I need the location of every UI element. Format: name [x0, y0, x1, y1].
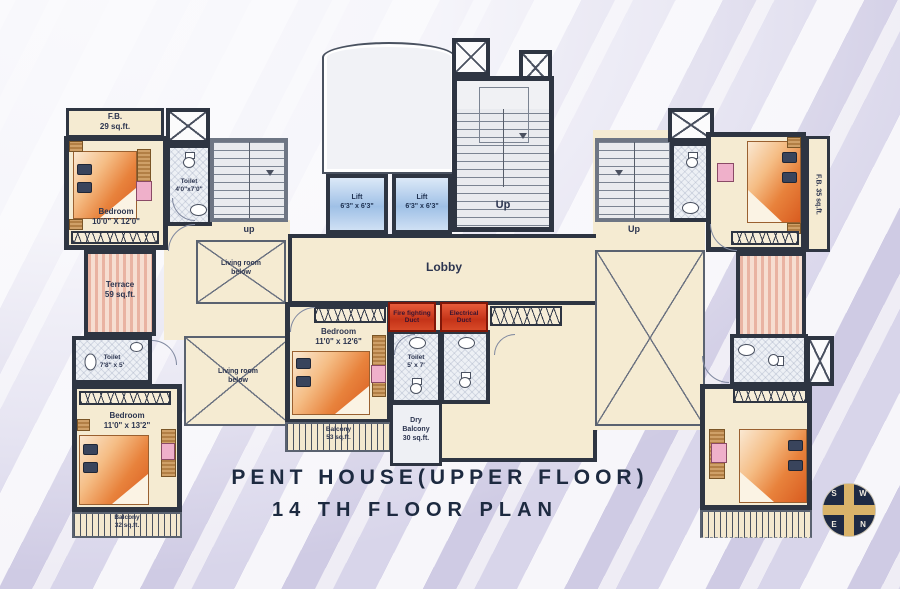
pillow — [77, 182, 92, 193]
stair-arrow-icon — [266, 170, 274, 176]
compass-east: E — [829, 520, 839, 529]
upper-terrace-curved — [322, 42, 456, 174]
toilet-top-left-size: 4'0"x7'0" — [170, 186, 208, 194]
fb-right-label: F.B. 35 sq.ft. — [809, 139, 827, 249]
pillow — [782, 172, 797, 183]
plan-title-line2: 14 TH FLOOR PLAN — [200, 499, 630, 522]
sheet-fold — [748, 190, 782, 222]
toilet-mid-left: Toilet7'8" x 5' — [72, 336, 152, 384]
compass-west: W — [858, 489, 868, 498]
toilet-icon — [183, 152, 195, 168]
floor-plan-canvas: F.B.29 sq.ft. Bedroom10'0" X 12'0" Toile… — [0, 0, 900, 589]
toilet-icon — [410, 378, 422, 394]
electrical-duct: ElectricalDuct — [440, 302, 488, 332]
electrical-duct-note: Duct — [442, 317, 486, 324]
stair-divider — [503, 109, 504, 187]
lift-1: Lift6'3" x 6'3" — [326, 174, 388, 234]
fire-duct-name: Fire fighting — [390, 310, 434, 317]
bed-furniture — [747, 141, 801, 223]
living-room-below-right — [595, 250, 705, 426]
plan-title-line1: PENT HOUSE(UPPER FLOOR) — [200, 466, 680, 490]
stair-arrow-icon — [519, 133, 527, 139]
pillow — [83, 462, 98, 473]
balcony-bottom-right — [700, 510, 812, 538]
compass-south: S — [829, 489, 839, 498]
bedroom-top-left-size: 10'0" X 12'0" — [69, 217, 163, 227]
door-arc — [702, 356, 729, 383]
toilet-icon — [459, 372, 471, 388]
shaft-duct-box — [452, 38, 490, 76]
terrace-left-area: 59 sq.ft. — [88, 290, 152, 300]
balcony-bottom-left-area: 32 sq.ft. — [74, 522, 180, 530]
staircase-right — [595, 138, 673, 222]
dry-balcony: DryBalcony30 sq.ft. — [390, 402, 442, 466]
toilet-icon — [768, 354, 784, 366]
wardrobe-hatch — [79, 391, 171, 405]
up-label-left: up — [210, 224, 288, 235]
balcony-center-name: Balcony — [287, 426, 390, 434]
up-label-right: Up — [595, 224, 673, 235]
pillow — [782, 152, 797, 163]
toilet-mid-left-name: Toilet — [76, 354, 148, 362]
balcony-bottom-left: Balcony32 sq.ft. — [72, 512, 182, 538]
pillow — [296, 376, 311, 387]
toilet-bottom-right — [730, 334, 808, 386]
toilet-top-left-name: Toilet — [170, 178, 208, 186]
bedroom-top-left: Bedroom10'0" X 12'0" — [64, 136, 168, 250]
pillow — [83, 444, 98, 455]
living-lower-name: Living room — [186, 368, 290, 377]
counter-basin-icon — [130, 342, 143, 352]
terrace-left-name: Terrace — [88, 280, 152, 290]
toilet-mid-left-size: 7'8" x 5' — [76, 362, 148, 370]
fb-left-area: 29 sq.ft. — [69, 122, 161, 132]
wardrobe-hatch — [490, 306, 562, 326]
stair-divider — [249, 142, 250, 218]
up-label-center: Up — [457, 199, 549, 213]
wardrobe-hatch — [71, 231, 159, 244]
electrical-duct-name: Electrical — [442, 310, 486, 317]
sheet-fold — [335, 386, 369, 414]
dressing-stool — [711, 443, 727, 463]
washbasin-icon — [458, 337, 475, 349]
bedroom-bottom-left-name: Bedroom — [77, 411, 177, 421]
bedroom-center-name: Bedroom — [290, 327, 387, 337]
dressing-stool — [136, 181, 152, 201]
side-table — [69, 141, 83, 152]
compass-cross-bar — [844, 484, 854, 536]
bedroom-top-left-name: Bedroom — [69, 207, 163, 217]
sheet-fold — [112, 474, 148, 504]
staircase-left — [210, 138, 288, 222]
toilet-icon — [686, 152, 698, 168]
lift-1-size: 6'3" x 6'3" — [330, 203, 384, 212]
toilet-center-name: Toilet — [394, 354, 438, 362]
fire-fighting-duct: Fire fightingDuct — [388, 302, 436, 332]
wardrobe-hatch — [731, 231, 799, 245]
lift-2-name: Lift — [396, 194, 448, 203]
dry-balcony-name2: Balcony — [393, 426, 439, 435]
lift-1-name: Lift — [330, 194, 384, 203]
stair-divider — [634, 142, 635, 218]
living-upper-note: below — [198, 269, 284, 278]
terrace-left: Terrace59 sq.ft. — [84, 250, 156, 336]
compass-rose: S W E N — [823, 484, 875, 536]
lobby: Lobby — [288, 234, 596, 305]
stair-arrow-icon — [615, 170, 623, 176]
bedroom-center-size: 11'0" x 12'6" — [290, 337, 387, 347]
balcony-center-area: 53 sq.ft. — [287, 434, 390, 442]
flower-bed-right: F.B. 35 sq.ft. — [806, 136, 830, 252]
dry-balcony-name: Dry — [393, 417, 439, 426]
staircase-center: Up — [452, 76, 554, 232]
fire-duct-note: Duct — [390, 317, 434, 324]
dry-balcony-area: 30 sq.ft. — [393, 435, 439, 444]
living-upper-name: Living room — [198, 260, 284, 269]
dressing-stool — [717, 163, 734, 182]
door-arc — [152, 340, 177, 365]
washbasin-icon — [682, 202, 699, 214]
toilet-center-size: 5' x 7' — [394, 362, 438, 370]
dressing-stool — [371, 365, 386, 383]
bed-furniture — [292, 351, 370, 415]
bedroom-bottom-left: Bedroom11'0" x 13'2" — [72, 384, 182, 512]
washbasin-icon — [738, 344, 755, 356]
fb-left-name: F.B. — [69, 112, 161, 122]
living-room-below-lower: Living roombelow — [184, 336, 292, 426]
bed-furniture — [739, 429, 807, 503]
living-room-below-upper: Living roombelow — [196, 240, 286, 304]
wardrobe-hatch — [314, 307, 386, 323]
lift-2-size: 6'3" x 6'3" — [396, 203, 448, 212]
bedroom-bottom-left-size: 11'0" x 13'2" — [77, 421, 177, 431]
dressing-stool — [161, 443, 175, 460]
living-lower-note: below — [186, 377, 290, 386]
flower-bed-left: F.B.29 sq.ft. — [66, 108, 164, 138]
lobby-label: Lobby — [292, 260, 596, 275]
terrace-right — [736, 252, 806, 338]
pillow — [296, 358, 311, 369]
pillow — [77, 164, 92, 175]
toilet-center-right — [440, 330, 490, 404]
sheet-fold — [740, 472, 774, 502]
pillow — [788, 440, 803, 451]
bedroom-bottom-right — [700, 384, 812, 510]
compass-north: N — [858, 520, 868, 529]
shaft-duct-box — [806, 336, 834, 386]
wardrobe-hatch — [733, 389, 807, 403]
bed-furniture — [79, 435, 149, 505]
pillow — [788, 460, 803, 471]
lift-2: Lift6'3" x 6'3" — [392, 174, 452, 234]
shaft-duct-box — [166, 108, 210, 144]
side-table — [787, 137, 801, 148]
balcony-bottom-left-name: Balcony — [74, 514, 180, 522]
balcony-center: Balcony53 sq.ft. — [285, 422, 392, 452]
